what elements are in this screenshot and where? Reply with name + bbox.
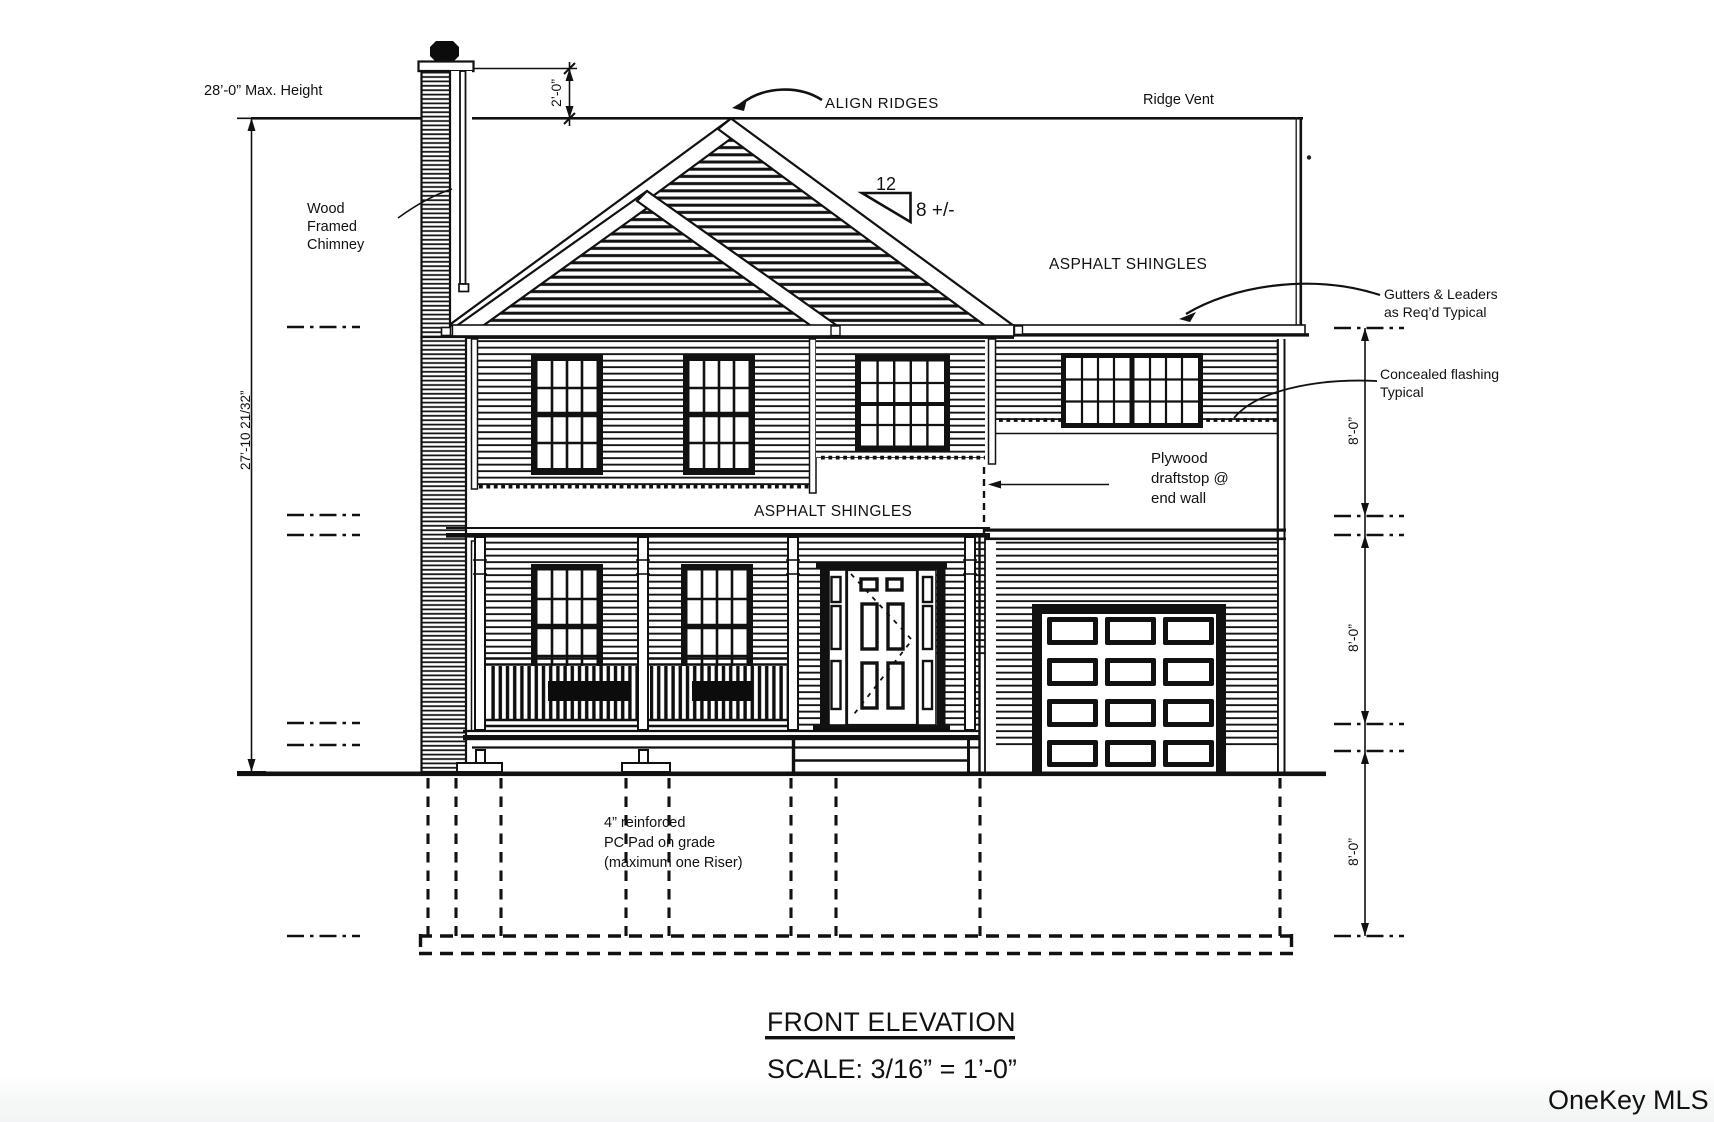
- svg-text:28’-0” Max. Height: 28’-0” Max. Height: [204, 83, 322, 99]
- svg-text:OneKey MLS: OneKey MLS: [1548, 1085, 1709, 1115]
- svg-text:8’-0”: 8’-0”: [1345, 624, 1361, 652]
- svg-text:ASPHALT SHINGLES: ASPHALT SHINGLES: [1049, 256, 1207, 273]
- svg-text:Plywood: Plywood: [1151, 450, 1208, 467]
- svg-text:Gutters & Leaders: Gutters & Leaders: [1384, 286, 1498, 302]
- svg-text:8 +/-: 8 +/-: [916, 200, 955, 221]
- svg-text:Chimney: Chimney: [307, 237, 365, 253]
- svg-text:PC Pad on grade: PC Pad on grade: [604, 835, 715, 851]
- svg-text:FRONT ELEVATION: FRONT ELEVATION: [767, 1007, 1016, 1037]
- svg-text:draftstop @: draftstop @: [1151, 470, 1229, 487]
- svg-text:4” reinforced: 4” reinforced: [604, 815, 685, 831]
- svg-text:Framed: Framed: [307, 219, 357, 235]
- svg-text:2’-0”: 2’-0”: [548, 79, 564, 107]
- svg-text:SCALE: 3/16” = 1’-0”: SCALE: 3/16” = 1’-0”: [767, 1054, 1017, 1084]
- svg-text:8’-0”: 8’-0”: [1345, 417, 1361, 445]
- svg-text:end wall: end wall: [1151, 490, 1206, 507]
- svg-text:as Req’d Typical: as Req’d Typical: [1384, 304, 1486, 320]
- svg-text:ALIGN RIDGES: ALIGN RIDGES: [825, 95, 939, 112]
- svg-text:Wood: Wood: [307, 201, 345, 217]
- svg-text:ASPHALT SHINGLES: ASPHALT SHINGLES: [754, 503, 912, 520]
- svg-text:Concealed flashing: Concealed flashing: [1380, 366, 1499, 382]
- svg-text:12: 12: [876, 174, 896, 194]
- svg-text:(maximum one Riser): (maximum one Riser): [604, 855, 743, 871]
- svg-text:Typical: Typical: [1380, 384, 1424, 400]
- svg-text:Ridge Vent: Ridge Vent: [1143, 92, 1214, 108]
- svg-text:8’-0”: 8’-0”: [1345, 838, 1361, 866]
- svg-text:27’-10 21/32”: 27’-10 21/32”: [238, 390, 253, 470]
